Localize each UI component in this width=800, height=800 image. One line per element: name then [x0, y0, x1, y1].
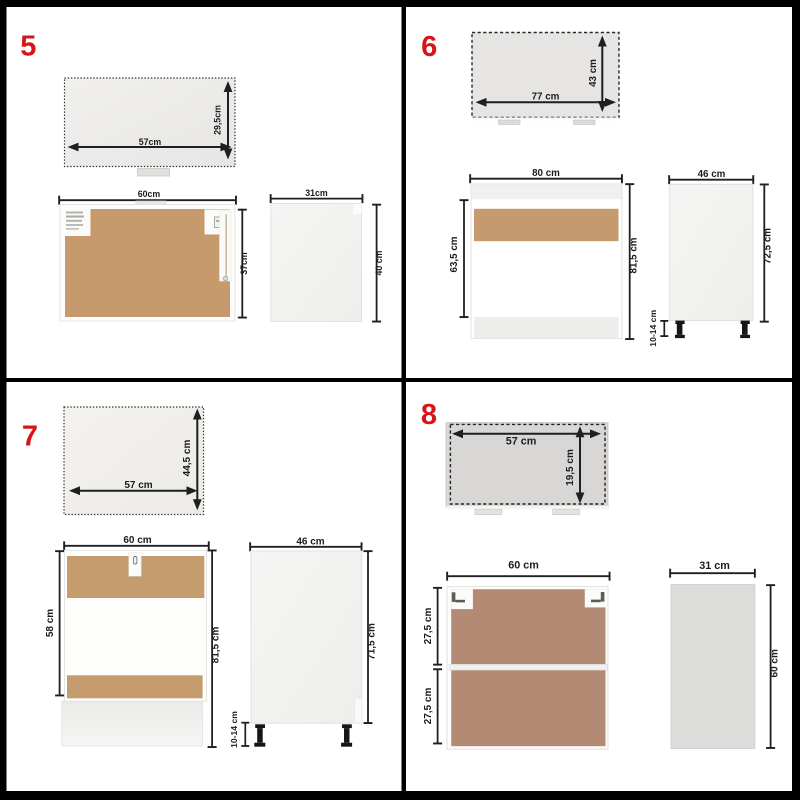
svg-text:27,5 cm: 27,5 cm: [423, 688, 434, 725]
svg-text:60 cm: 60 cm: [508, 560, 539, 572]
svg-text:63,5 cm: 63,5 cm: [449, 236, 460, 272]
svg-text:37cm: 37cm: [239, 252, 249, 275]
svg-text:77 cm: 77 cm: [532, 92, 560, 103]
svg-text:57 cm: 57 cm: [506, 436, 537, 448]
svg-text:10-14 cm: 10-14 cm: [229, 711, 239, 748]
svg-text:40 cm: 40 cm: [374, 250, 384, 275]
svg-text:44,5 cm: 44,5 cm: [182, 440, 193, 477]
svg-text:43 cm: 43 cm: [588, 59, 599, 87]
svg-text:60 cm: 60 cm: [769, 649, 780, 677]
svg-text:8: 8: [421, 399, 437, 431]
svg-text:27,5 cm: 27,5 cm: [423, 608, 434, 645]
svg-text:80 cm: 80 cm: [532, 168, 560, 179]
svg-text:5: 5: [20, 31, 36, 63]
svg-text:72,5 cm: 72,5 cm: [763, 228, 774, 264]
svg-text:29,5cm: 29,5cm: [213, 105, 223, 135]
svg-text:57cm: 57cm: [139, 137, 162, 147]
svg-text:81,5 cm: 81,5 cm: [211, 627, 222, 664]
svg-text:46 cm: 46 cm: [296, 536, 324, 547]
svg-text:19,5 cm: 19,5 cm: [565, 449, 576, 486]
svg-text:31 cm: 31 cm: [699, 560, 730, 572]
svg-text:10-14 cm: 10-14 cm: [648, 310, 658, 347]
svg-text:6: 6: [421, 31, 437, 63]
svg-text:71,5 cm: 71,5 cm: [366, 623, 377, 660]
svg-text:81,5 cm: 81,5 cm: [628, 237, 639, 273]
svg-text:31cm: 31cm: [305, 188, 328, 198]
svg-text:57 cm: 57 cm: [124, 480, 152, 491]
svg-text:60 cm: 60 cm: [123, 535, 151, 546]
svg-text:7: 7: [22, 421, 38, 453]
svg-text:58 cm: 58 cm: [45, 609, 56, 637]
svg-text:60cm: 60cm: [138, 189, 161, 199]
svg-text:46 cm: 46 cm: [698, 169, 726, 180]
